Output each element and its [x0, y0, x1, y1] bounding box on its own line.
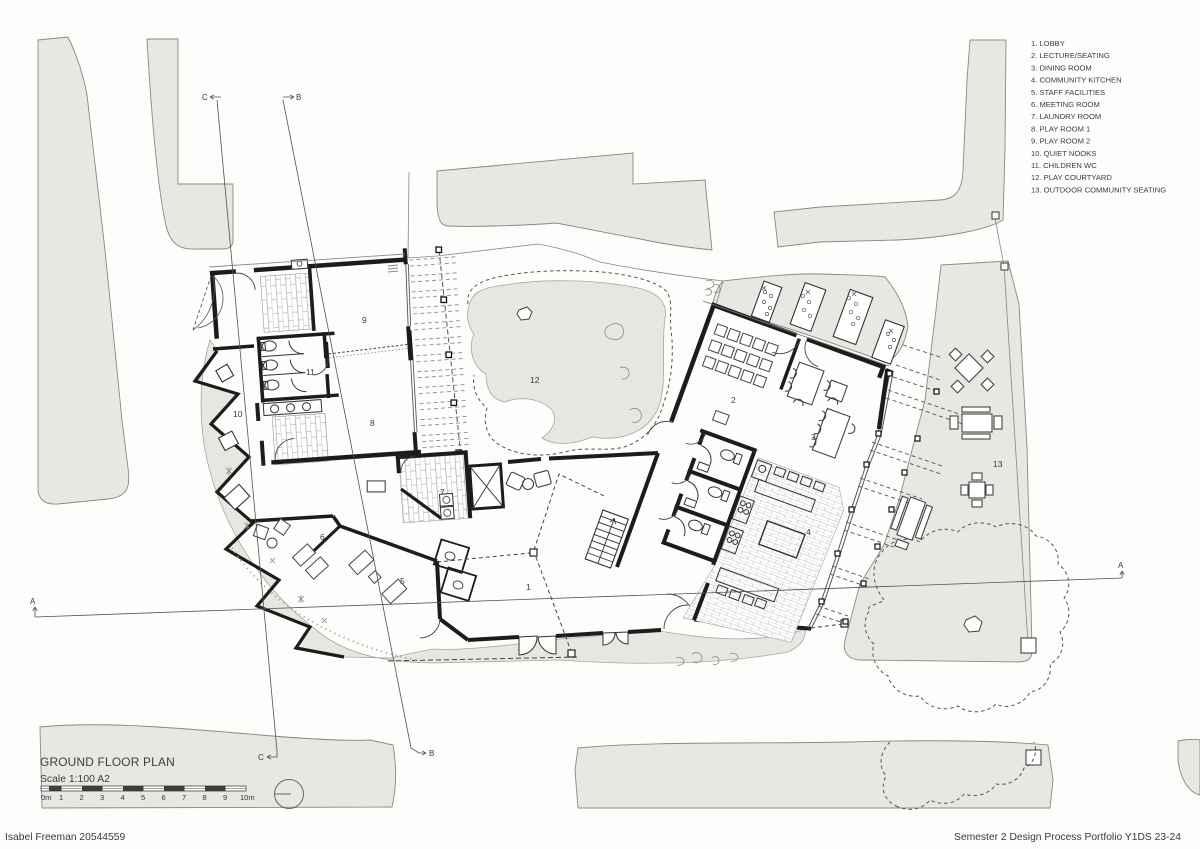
svg-text:11: 11 [306, 367, 315, 377]
svg-text:11. CHILDREN WC: 11. CHILDREN WC [1031, 161, 1097, 170]
svg-text:1: 1 [526, 582, 531, 592]
svg-text:GROUND FLOOR PLAN: GROUND FLOOR PLAN [40, 755, 175, 769]
svg-text:5. STAFF FACILITIES: 5. STAFF FACILITIES [1031, 88, 1105, 97]
svg-text:3. DINING ROOM: 3. DINING ROOM [1031, 63, 1092, 72]
svg-text:1. LOBBY: 1. LOBBY [1031, 39, 1065, 48]
svg-text:8. PLAY ROOM 1: 8. PLAY ROOM 1 [1031, 124, 1090, 133]
svg-text:C: C [258, 753, 264, 762]
svg-text:5: 5 [400, 576, 405, 586]
svg-text:2: 2 [731, 395, 736, 405]
svg-text:Semester 2 Design Process Port: Semester 2 Design Process Portfolio Y1DS… [954, 832, 1181, 843]
svg-text:B: B [429, 749, 434, 758]
svg-text:8: 8 [370, 418, 375, 428]
svg-text:Isabel Freeman 20544559: Isabel Freeman 20544559 [5, 832, 125, 843]
svg-text:A: A [1118, 561, 1124, 570]
svg-text:Scale 1:100 A2: Scale 1:100 A2 [40, 774, 110, 785]
svg-text:12: 12 [530, 375, 540, 385]
svg-text:5: 5 [141, 793, 145, 802]
svg-text:6: 6 [162, 793, 166, 802]
svg-text:7. LAUNDRY ROOM: 7. LAUNDRY ROOM [1031, 112, 1101, 121]
svg-text:8: 8 [203, 793, 207, 802]
svg-text:6: 6 [320, 532, 325, 542]
svg-text:9. PLAY ROOM 2: 9. PLAY ROOM 2 [1031, 137, 1090, 146]
svg-text:B: B [296, 93, 301, 102]
svg-text:6. MEETING ROOM: 6. MEETING ROOM [1031, 100, 1100, 109]
svg-text:4: 4 [121, 793, 125, 802]
svg-text:9: 9 [223, 793, 227, 802]
svg-text:7: 7 [440, 487, 445, 497]
svg-text:13. OUTDOOR COMMUNITY SEATING: 13. OUTDOOR COMMUNITY SEATING [1031, 185, 1166, 194]
svg-text:10: 10 [233, 409, 243, 419]
svg-text:2. LECTURE/SEATING: 2. LECTURE/SEATING [1031, 51, 1110, 60]
svg-text:4: 4 [806, 527, 811, 537]
svg-text:4. COMMUNITY KITCHEN: 4. COMMUNITY KITCHEN [1031, 76, 1122, 85]
svg-text:10. QUIET NOOKS: 10. QUIET NOOKS [1031, 149, 1096, 158]
svg-text:3: 3 [100, 793, 104, 802]
svg-text:1: 1 [59, 793, 63, 802]
svg-text:7: 7 [182, 793, 186, 802]
svg-text:A: A [30, 597, 36, 606]
svg-text:9: 9 [362, 315, 367, 325]
svg-text:2: 2 [80, 793, 84, 802]
svg-text:12. PLAY COURTYARD: 12. PLAY COURTYARD [1031, 173, 1112, 182]
svg-text:3: 3 [811, 432, 816, 442]
svg-text:0m: 0m [41, 793, 51, 802]
svg-text:10m: 10m [240, 793, 255, 802]
svg-text:13: 13 [993, 459, 1003, 469]
svg-text:C: C [202, 93, 208, 102]
